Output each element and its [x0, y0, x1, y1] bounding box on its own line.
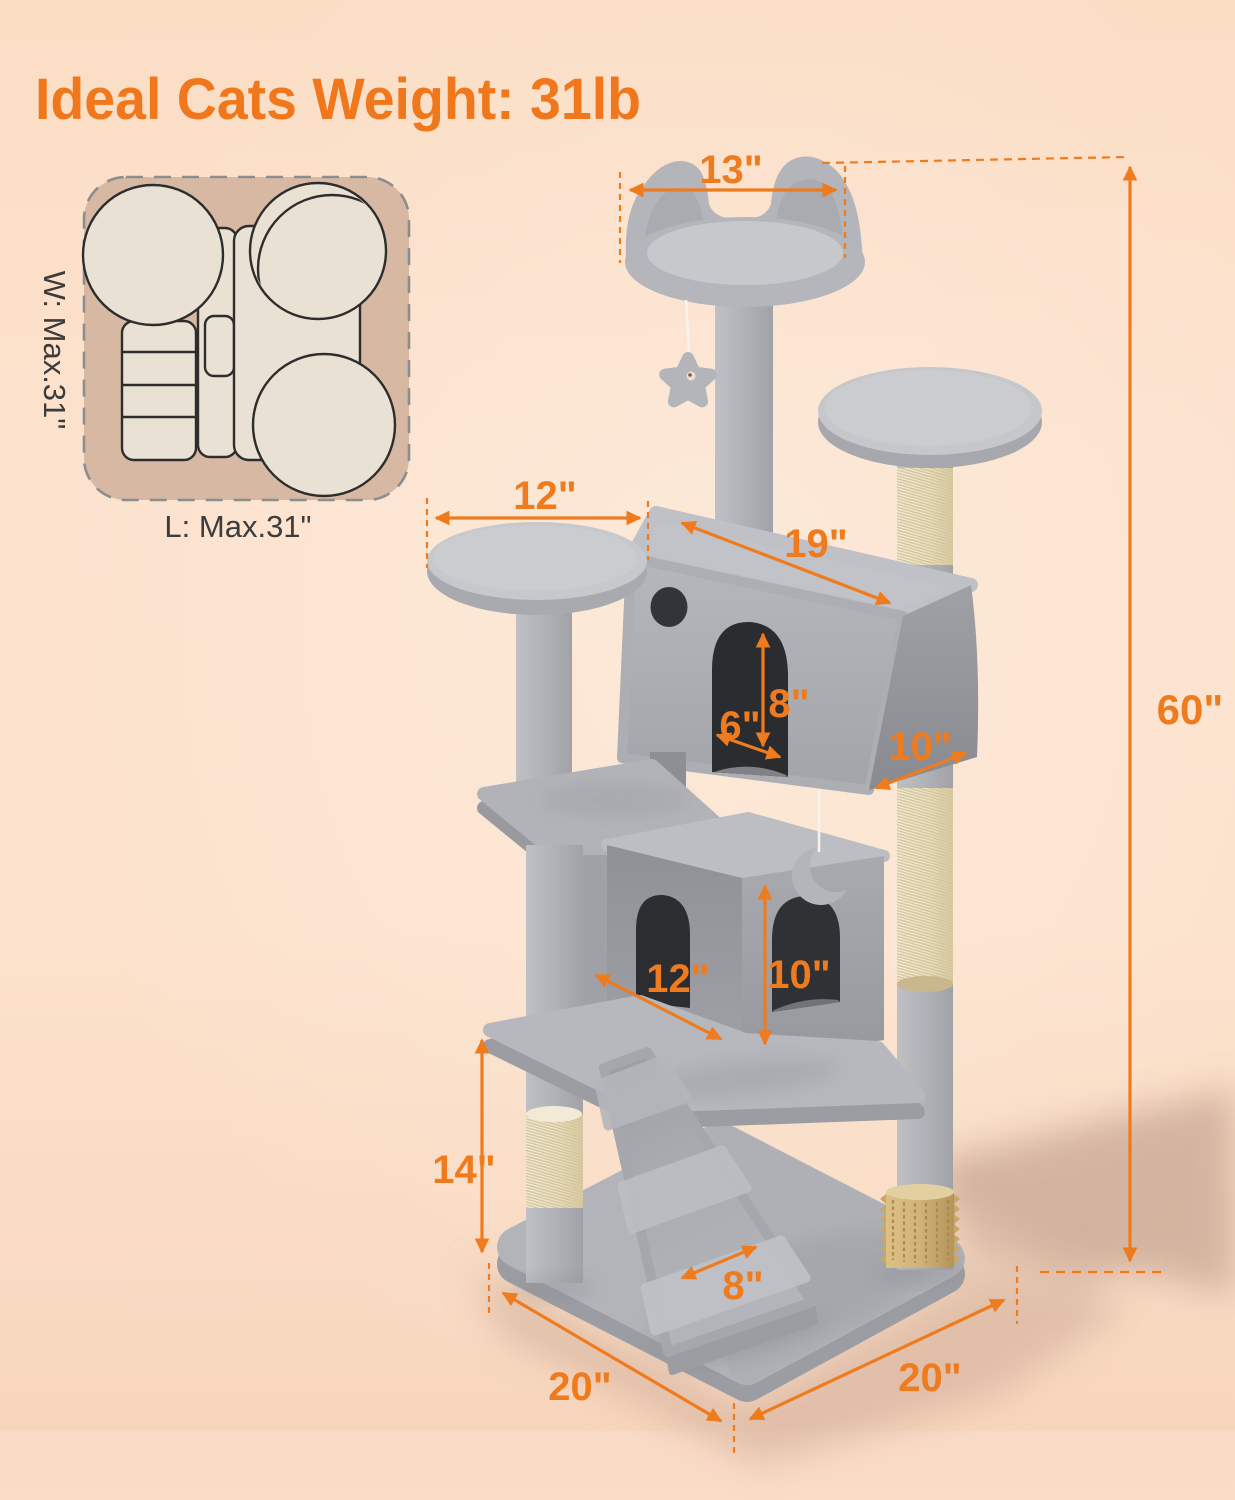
svg-text:20": 20" — [548, 1365, 611, 1409]
svg-text:12": 12" — [513, 474, 576, 518]
svg-text:13": 13" — [699, 148, 762, 192]
svg-text:6": 6" — [719, 704, 760, 748]
svg-text:L: Max.31": L: Max.31" — [164, 509, 311, 544]
svg-text:10": 10" — [888, 725, 951, 769]
svg-text:W: Max.31": W: Max.31" — [37, 271, 72, 430]
svg-text:8": 8" — [768, 682, 809, 726]
svg-text:60": 60" — [1157, 686, 1224, 733]
svg-text:Ideal Cats Weight: 31lb: Ideal Cats Weight: 31lb — [35, 67, 641, 132]
svg-text:8": 8" — [722, 1264, 763, 1308]
svg-text:19": 19" — [784, 522, 847, 566]
svg-text:20": 20" — [898, 1356, 961, 1400]
svg-text:12": 12" — [646, 957, 709, 1001]
svg-text:10": 10" — [767, 953, 830, 997]
svg-text:14": 14" — [432, 1148, 495, 1192]
